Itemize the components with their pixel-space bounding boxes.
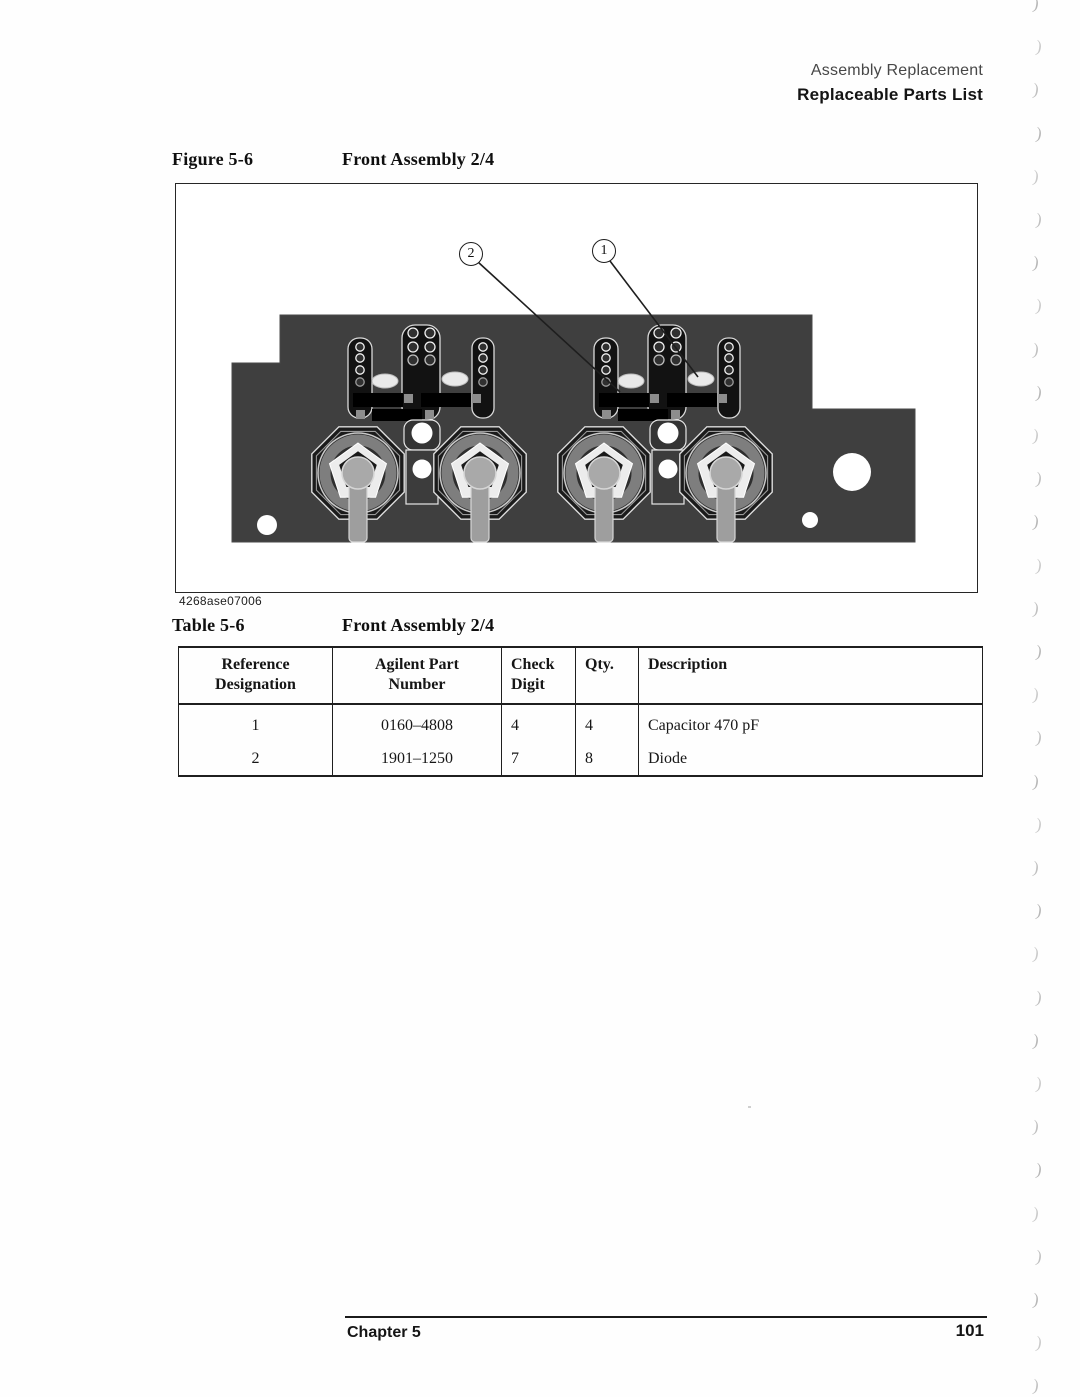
binding-mark-icon: )	[1034, 814, 1043, 835]
figure-label: Figure 5-6	[172, 149, 253, 169]
binding-mark-icon: )	[1031, 858, 1040, 879]
binding-mark-icon: )	[1034, 1074, 1043, 1095]
binding-mark-icon: )	[1031, 944, 1040, 965]
table-heading: Table 5-6 Front Assembly 2/4	[172, 615, 872, 636]
binding-mark-icon: )	[1031, 339, 1040, 360]
binding-mark-icon: )	[1034, 901, 1043, 922]
binding-mark-icon: )	[1034, 1160, 1043, 1181]
binding-mark-icon: )	[1034, 123, 1043, 144]
figure-title: Front Assembly 2/4	[342, 149, 494, 170]
figure-box: 2 1	[175, 183, 978, 593]
binding-mark-icon: )	[1034, 210, 1043, 231]
binding-mark-icon: )	[1034, 728, 1043, 749]
binding-mark-icon: )	[1034, 642, 1043, 663]
mounting-hole	[833, 453, 871, 491]
binding-mark-icon: )	[1031, 253, 1040, 274]
table-row: 21901–125078Diode	[179, 742, 983, 776]
table-cell: 4	[502, 704, 576, 742]
binding-mark-icon: )	[1031, 166, 1040, 187]
binding-mark-icon: )	[1034, 37, 1043, 58]
table-cell: 2	[179, 742, 333, 776]
footer-page-number: 101	[900, 1321, 984, 1341]
binding-mark-icon: )	[1031, 771, 1040, 792]
table-cell: 0160–4808	[333, 704, 502, 742]
manual-page: Assembly Replacement Replaceable Parts L…	[0, 0, 1080, 1397]
footer-chapter: Chapter 5	[347, 1324, 421, 1342]
table-cell: Diode	[639, 742, 983, 776]
column-header: Reference Designation	[179, 647, 333, 704]
column-header: Description	[639, 647, 983, 704]
mounting-hole	[802, 512, 818, 528]
binding-mark-icon: )	[1034, 296, 1043, 317]
table-label: Table 5-6	[172, 615, 245, 635]
binding-mark-icon: )	[1031, 1203, 1040, 1224]
table-cell: 1	[179, 704, 333, 742]
column-header: Qty.	[576, 647, 639, 704]
pcb-illustration	[176, 184, 976, 590]
mounting-hole	[257, 515, 277, 535]
table-cell: 8	[576, 742, 639, 776]
footer-rule	[345, 1316, 987, 1318]
parts-table-header: Reference DesignationAgilent Part Number…	[179, 647, 983, 704]
table-row: 10160–480844Capacitor 470 pF	[179, 704, 983, 742]
page-header: Assembly Replacement Replaceable Parts L…	[797, 62, 983, 105]
scan-speck	[748, 1106, 751, 1108]
binding-mark-icon: )	[1031, 0, 1040, 14]
binding-mark-icon: )	[1034, 987, 1043, 1008]
table-cell: 1901–1250	[333, 742, 502, 776]
parts-table: Reference DesignationAgilent Part Number…	[178, 646, 983, 777]
binding-mark-icon: )	[1031, 598, 1040, 619]
binding-mark-icon: )	[1034, 555, 1043, 576]
table-cell: Capacitor 470 pF	[639, 704, 983, 742]
binding-mark-icon: )	[1031, 1030, 1040, 1051]
header-subsection-title: Replaceable Parts List	[797, 85, 983, 105]
table-title: Front Assembly 2/4	[342, 615, 494, 636]
callout-2: 2	[459, 242, 483, 266]
column-header: Check Digit	[502, 647, 576, 704]
binding-mark-icon: )	[1031, 1376, 1040, 1397]
callout-1: 1	[592, 239, 616, 263]
table-cell: 4	[576, 704, 639, 742]
binding-mark-icon: )	[1031, 1117, 1040, 1138]
header-section-title: Assembly Replacement	[797, 62, 983, 80]
binding-mark-icon: )	[1034, 1333, 1043, 1354]
binding-mark-icon: )	[1031, 426, 1040, 447]
binding-mark-icon: )	[1031, 685, 1040, 706]
binding-mark-icon: )	[1031, 1290, 1040, 1311]
figure-heading: Figure 5-6 Front Assembly 2/4	[172, 149, 872, 170]
binding-mark-icon: )	[1031, 80, 1040, 101]
binding-mark-icon: )	[1034, 469, 1043, 490]
table-cell: 7	[502, 742, 576, 776]
binding-mark-icon: )	[1034, 382, 1043, 403]
figure-image-caption: 4268ase07006	[179, 594, 262, 608]
column-header: Agilent Part Number	[333, 647, 502, 704]
binding-mark-icon: )	[1034, 1246, 1043, 1267]
binding-mark-icon: )	[1031, 512, 1040, 533]
